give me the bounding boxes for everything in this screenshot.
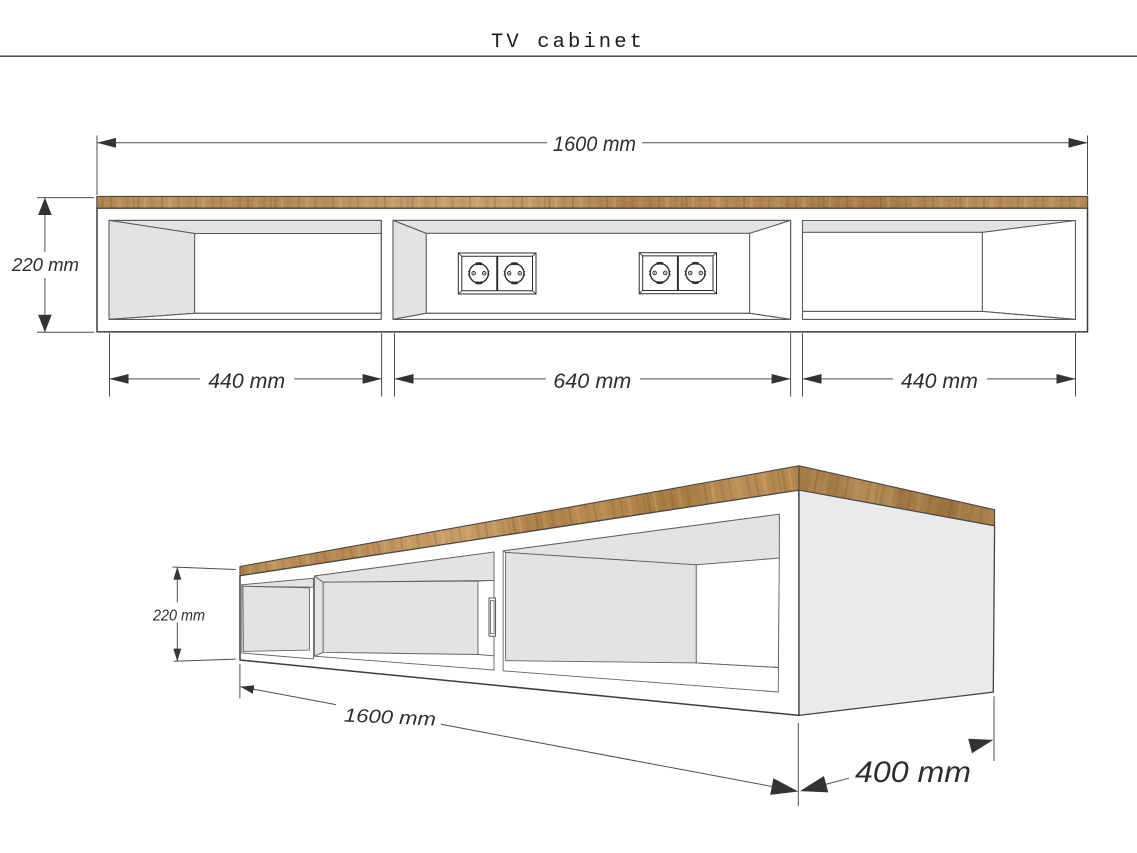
svg-text:1600 mm: 1600 mm — [344, 706, 437, 731]
svg-text:220 mm: 220 mm — [152, 608, 205, 625]
svg-text:440 mm: 440 mm — [901, 369, 978, 393]
svg-text:640 mm: 640 mm — [553, 369, 631, 393]
svg-text:TV cabinet: TV cabinet — [491, 31, 645, 54]
svg-text:220 mm: 220 mm — [11, 254, 79, 275]
svg-text:440 mm: 440 mm — [208, 369, 285, 393]
svg-text:1600 mm: 1600 mm — [553, 132, 636, 156]
svg-text:400 mm: 400 mm — [855, 756, 971, 789]
